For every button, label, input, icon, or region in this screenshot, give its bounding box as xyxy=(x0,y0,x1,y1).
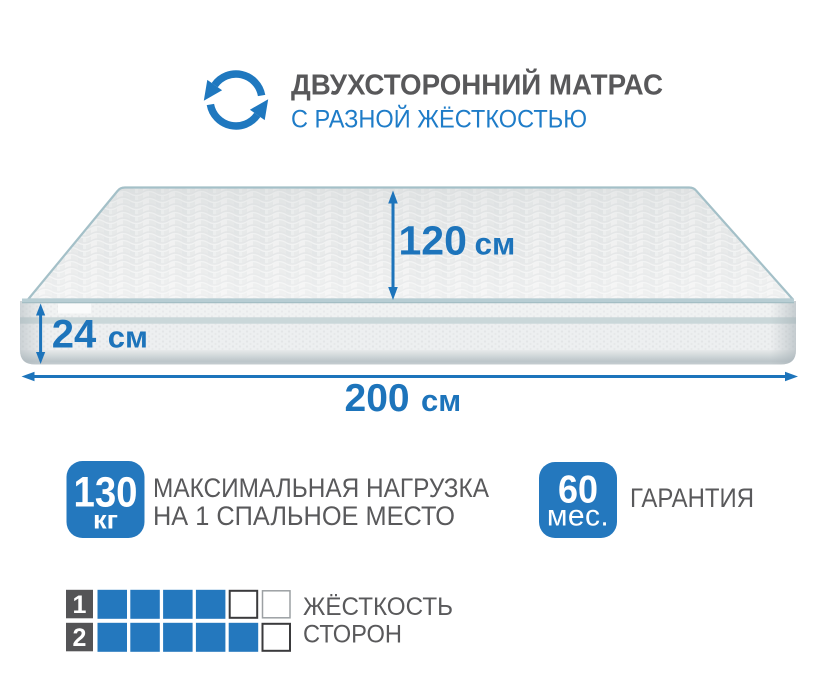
svg-text:ЖЁСТКОСТЬ: ЖЁСТКОСТЬ xyxy=(303,593,453,621)
svg-text:см: см xyxy=(421,383,461,418)
svg-text:см: см xyxy=(475,226,516,262)
svg-text:МАКСИМАЛЬНАЯ НАГРУЗКА: МАКСИМАЛЬНАЯ НАГРУЗКА xyxy=(153,473,489,503)
svg-text:ГАРАНТИЯ: ГАРАНТИЯ xyxy=(630,483,754,513)
svg-text:СТОРОН: СТОРОН xyxy=(303,620,402,648)
svg-text:1: 1 xyxy=(73,591,87,619)
svg-text:120: 120 xyxy=(399,218,467,264)
svg-text:24: 24 xyxy=(52,313,97,357)
svg-text:кг: кг xyxy=(93,505,118,535)
svg-text:НА 1 СПАЛЬНОЕ МЕСТО: НА 1 СПАЛЬНОЕ МЕСТО xyxy=(153,501,455,531)
svg-text:мес.: мес. xyxy=(547,500,609,533)
svg-text:2: 2 xyxy=(73,624,87,652)
svg-text:С РАЗНОЙ ЖЁСТКОСТЬЮ: С РАЗНОЙ ЖЁСТКОСТЬЮ xyxy=(291,104,587,134)
svg-text:200: 200 xyxy=(345,377,410,420)
svg-text:ДВУХСТОРОННИЙ МАТРАС: ДВУХСТОРОННИЙ МАТРАС xyxy=(291,67,663,101)
svg-text:см: см xyxy=(108,320,148,355)
